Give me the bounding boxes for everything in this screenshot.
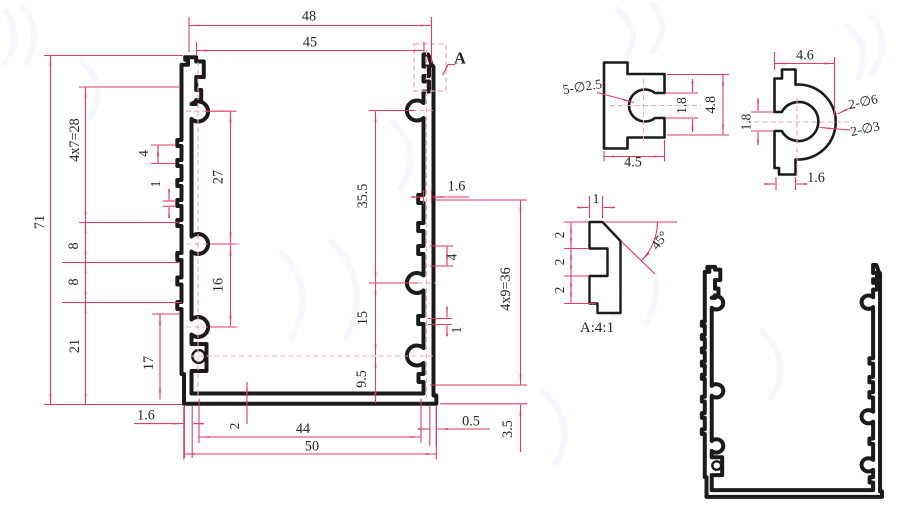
svg-text:71: 71: [32, 215, 48, 229]
svg-text:A: A: [454, 49, 466, 68]
svg-text:15: 15: [355, 311, 371, 325]
svg-text:45: 45: [303, 35, 317, 51]
svg-text:2: 2: [552, 287, 567, 294]
svg-text:1.6: 1.6: [807, 170, 825, 186]
svg-text:8: 8: [66, 278, 82, 285]
svg-text:2: 2: [552, 232, 567, 239]
svg-text:1: 1: [593, 191, 600, 206]
svg-text:50: 50: [305, 439, 319, 455]
svg-text:4.8: 4.8: [703, 96, 719, 114]
svg-text:0.5: 0.5: [462, 414, 480, 430]
svg-text:4.5: 4.5: [624, 155, 642, 171]
svg-text:1.8: 1.8: [674, 97, 689, 114]
svg-text:35.5: 35.5: [355, 184, 371, 209]
svg-text:4: 4: [136, 150, 151, 157]
svg-text:A:4:1: A:4:1: [580, 320, 614, 336]
svg-text:1: 1: [449, 327, 464, 334]
svg-text:9.5: 9.5: [354, 370, 370, 388]
svg-text:16: 16: [211, 278, 227, 292]
svg-text:2: 2: [552, 259, 567, 266]
svg-text:4: 4: [445, 253, 460, 260]
svg-text:1.6: 1.6: [137, 408, 155, 424]
svg-text:27: 27: [211, 170, 227, 184]
svg-text:4.6: 4.6: [796, 48, 814, 64]
svg-text:3.5: 3.5: [500, 420, 516, 438]
svg-text:1.6: 1.6: [448, 179, 466, 195]
svg-text:4x9=36: 4x9=36: [498, 267, 514, 310]
svg-text:4x7=28: 4x7=28: [67, 118, 83, 161]
svg-text:17: 17: [141, 356, 157, 370]
svg-text:1.8: 1.8: [739, 113, 754, 130]
svg-text:2: 2: [227, 423, 242, 430]
svg-text:8: 8: [66, 242, 82, 249]
svg-text:21: 21: [67, 339, 83, 353]
svg-text:1: 1: [148, 181, 163, 188]
svg-text:44: 44: [296, 421, 310, 437]
svg-text:48: 48: [302, 9, 316, 25]
